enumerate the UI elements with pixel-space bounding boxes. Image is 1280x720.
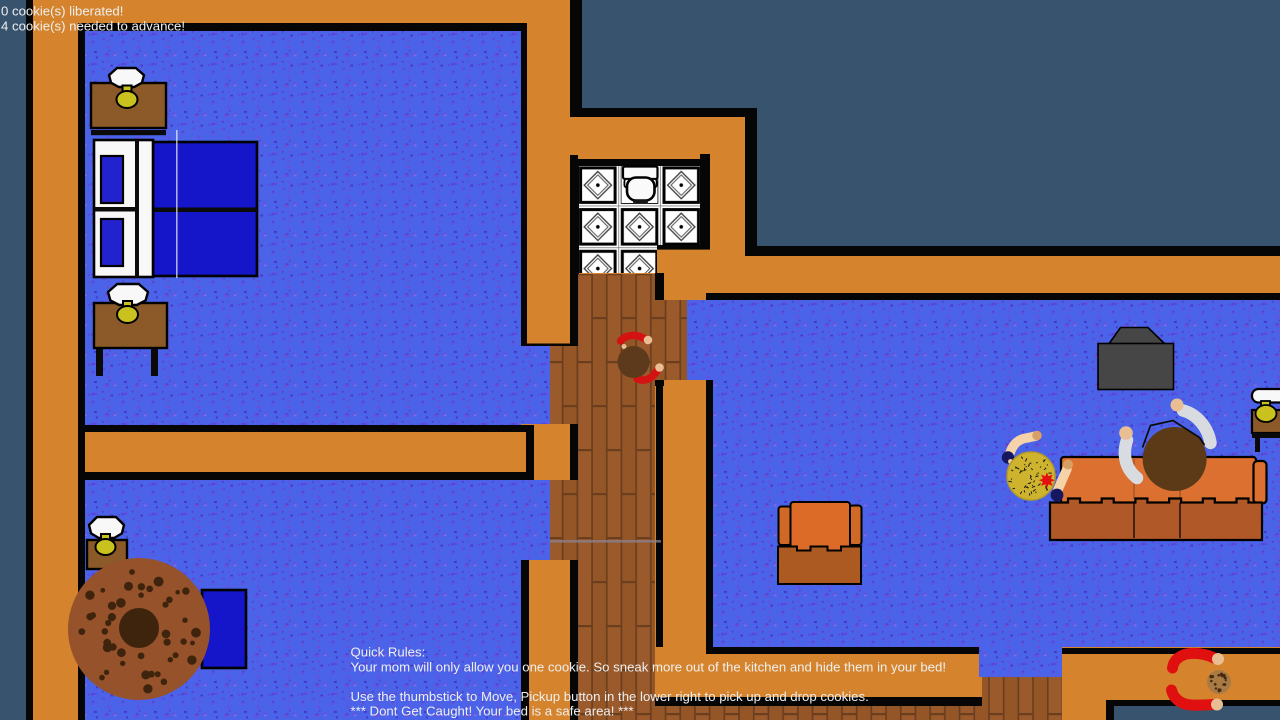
svg-text:4 cookie(s) needed to advance!: 4 cookie(s) needed to advance! <box>1 18 185 33</box>
svg-text:Quick Rules:: Quick Rules: <box>351 645 426 660</box>
svg-text:0 cookie(s) liberated!: 0 cookie(s) liberated! <box>1 4 123 19</box>
svg-text:Your mom will only allow you o: Your mom will only allow you one cookie.… <box>351 659 946 674</box>
svg-text:*** Dont Get Caught! Your bed: *** Dont Get Caught! Your bed is a safe … <box>351 704 634 719</box>
svg-text:Use the thumbstick to Move, Pi: Use the thumbstick to Move, Pickup butto… <box>351 689 869 704</box>
